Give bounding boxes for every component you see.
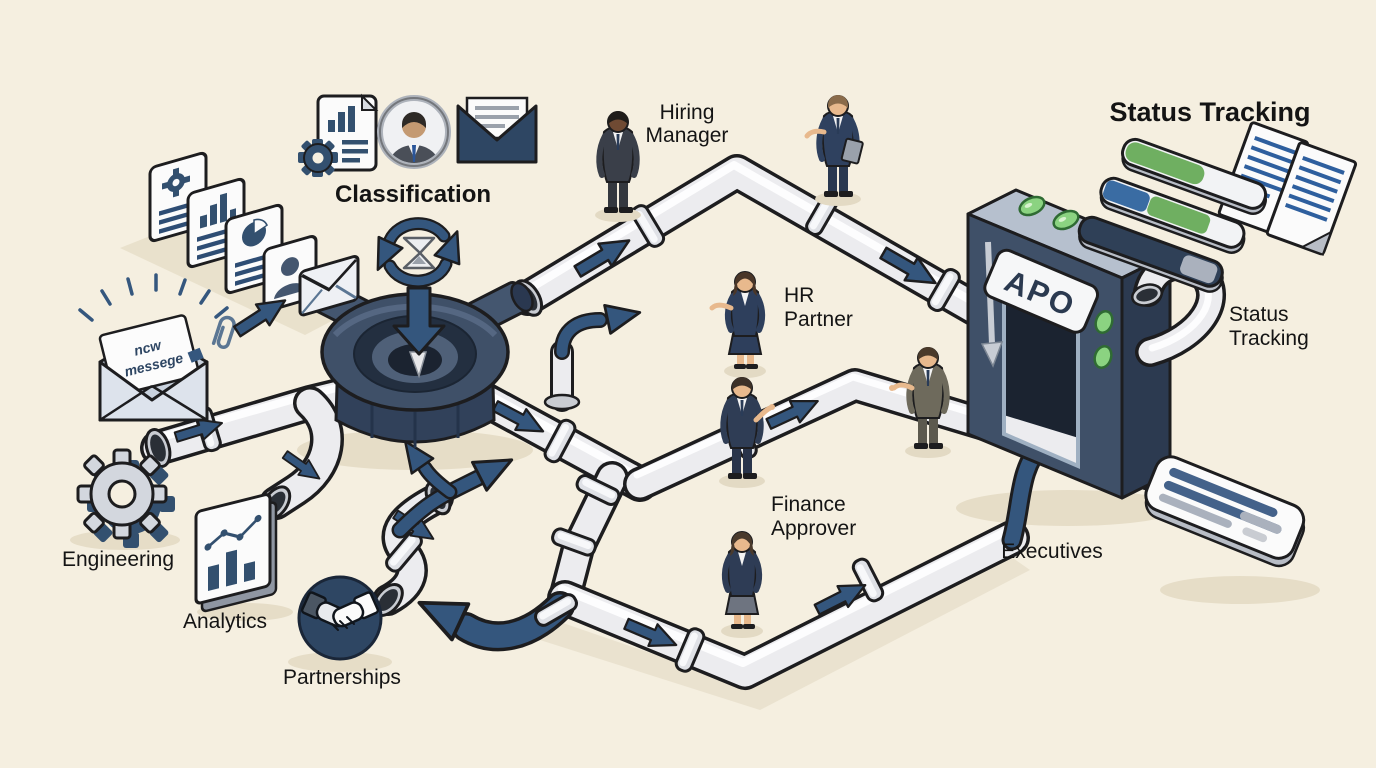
analytics-label: Analytics xyxy=(183,610,267,633)
analytics-card xyxy=(196,494,276,612)
finance-approver-label-line1: Finance xyxy=(771,493,846,516)
hiring-manager-label-line2: Manager xyxy=(646,124,729,147)
classification-label: Classification xyxy=(335,181,491,208)
classification-group: Classification xyxy=(298,96,536,208)
status-tracking-small-line2: Tracking xyxy=(1229,327,1309,350)
finance-approver-label-line2: Approver xyxy=(771,517,856,540)
hiring-manager-label-line1: Hiring xyxy=(660,101,715,124)
status-tracking-small-line1: Status xyxy=(1229,303,1289,326)
analytics-chart-icon xyxy=(196,494,270,604)
executives-label: Executives xyxy=(1001,540,1103,563)
recruiter-figure xyxy=(807,95,863,206)
person-avatar-icon xyxy=(380,98,448,166)
engineering-gear xyxy=(78,450,175,548)
status-card-icon xyxy=(1138,452,1311,571)
report-document-icon xyxy=(298,96,376,177)
scene-canvas: ncw messege xyxy=(0,0,1376,768)
hiring-manager-figure xyxy=(595,111,641,222)
requester-figure xyxy=(721,532,763,638)
pipeline-illustration: ncw messege xyxy=(0,0,1376,768)
paperclip-icon xyxy=(213,316,236,349)
hr-partner-figure xyxy=(712,272,766,378)
gear-icon xyxy=(78,450,166,538)
engineering-label: Engineering xyxy=(62,548,174,571)
hourglass-icon xyxy=(404,238,434,268)
status-tracking-heading: Status Tracking xyxy=(1109,97,1310,127)
partnerships-label: Partnerships xyxy=(283,666,401,689)
hr-partner-label-line2: Partner xyxy=(784,308,853,331)
gear-icon xyxy=(298,139,338,177)
new-message-envelope-icon: ncw messege xyxy=(99,315,207,420)
partnerships-badge xyxy=(299,577,381,659)
open-envelope-icon xyxy=(458,98,536,162)
hr-partner-label-line1: HR xyxy=(784,284,814,307)
